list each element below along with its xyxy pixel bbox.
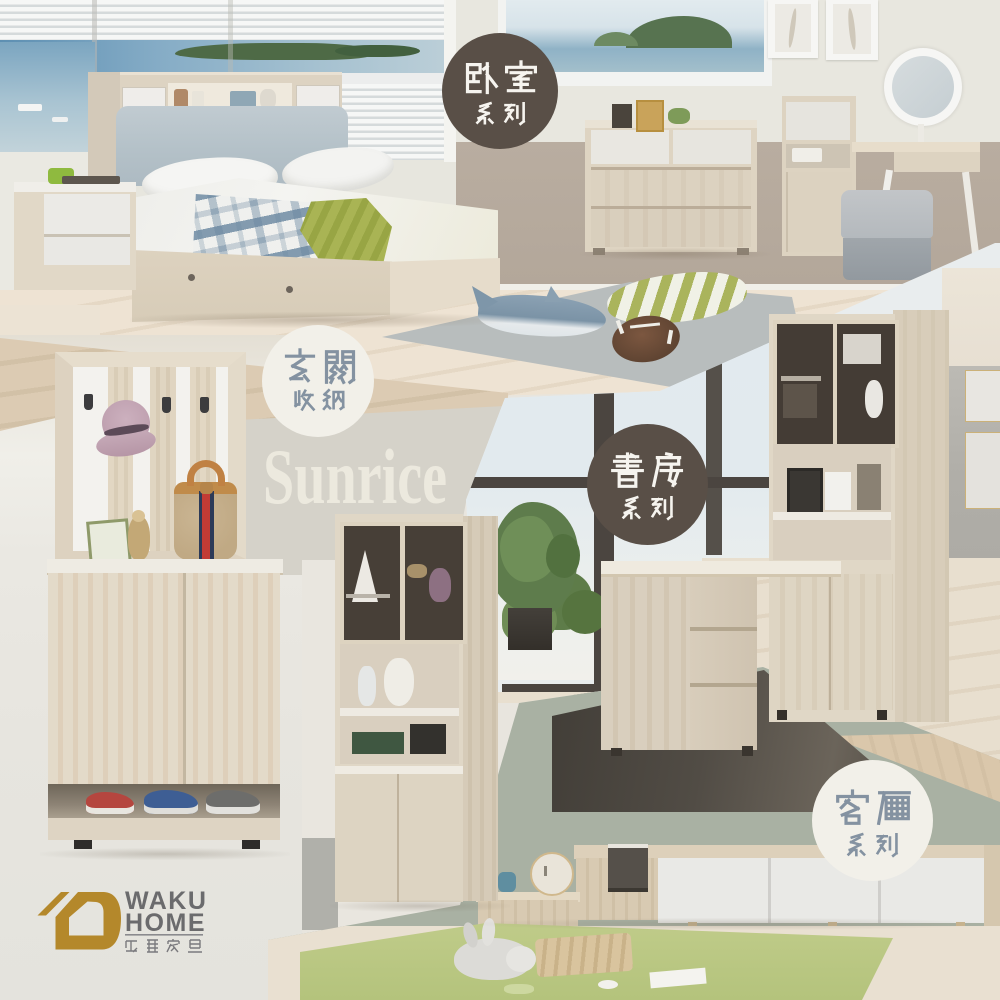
svg-text:HOME: HOME [125, 909, 206, 937]
